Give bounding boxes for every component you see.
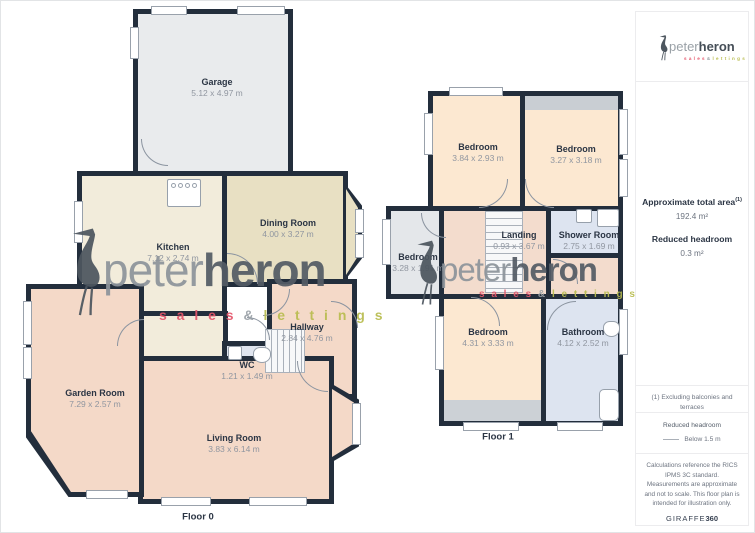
brand-tagline: s a l e s & l e t t i n g s bbox=[479, 289, 637, 300]
room-dims: 5.12 x 4.97 m bbox=[152, 88, 282, 99]
reduced-headroom-value: 0.3 m² bbox=[636, 249, 748, 258]
window bbox=[355, 209, 364, 233]
legend-line-swatch bbox=[663, 439, 679, 440]
tagline-lettings: l e t t i n g s bbox=[552, 289, 637, 300]
window bbox=[23, 347, 32, 379]
burner-icon bbox=[185, 183, 190, 188]
window bbox=[161, 497, 211, 506]
window bbox=[463, 422, 519, 431]
floor0-label: Floor 0 bbox=[138, 512, 258, 523]
room-name: Bathroom bbox=[518, 327, 648, 338]
tagline-sales: s a l e s bbox=[159, 307, 237, 323]
brand-name-bold: heron bbox=[699, 39, 735, 54]
window bbox=[23, 301, 32, 345]
heron-icon bbox=[413, 237, 441, 312]
brand-tagline: s a l e s & l e t t i n g s bbox=[159, 307, 386, 323]
giraffe360-logo: GIRAFFE360 bbox=[643, 514, 741, 523]
approx-area-text: Approximate total area bbox=[642, 197, 735, 207]
brand-name-light: peter bbox=[103, 244, 203, 296]
sink-icon bbox=[228, 346, 242, 360]
room-dims: 4.12 x 2.52 m bbox=[518, 338, 648, 349]
shower-icon bbox=[597, 209, 619, 227]
room-label-living: Living Room 3.83 x 6.14 m bbox=[169, 433, 299, 455]
sidebar-area-section: Approximate total area(1) 192.4 m² Reduc… bbox=[636, 82, 748, 386]
heron-icon bbox=[67, 223, 105, 324]
approx-area-value: 192.4 m² bbox=[636, 212, 748, 221]
brand-wordmark: peterheron bbox=[440, 253, 597, 286]
info-sidebar: peterheron s a l e s & l e t t i n g s A… bbox=[635, 11, 749, 526]
tagline-amp: & bbox=[243, 307, 256, 323]
tagline-amp: & bbox=[707, 56, 711, 61]
room-name: Bedroom bbox=[511, 144, 641, 155]
brand-name-light: peter bbox=[669, 39, 699, 54]
approx-area-footnote-marker: (1) bbox=[735, 197, 742, 203]
room-dims: 2.84 x 4.76 m bbox=[242, 333, 372, 344]
room-name: WC bbox=[182, 360, 312, 371]
room-label-wc: WC 1.21 x 1.49 m bbox=[182, 360, 312, 382]
brand-tagline: s a l e s & l e t t i n g s bbox=[684, 56, 745, 61]
room-label-garage: Garage 5.12 x 4.97 m bbox=[152, 77, 282, 99]
heron-icon bbox=[658, 34, 669, 66]
tagline-sales: s a l e s bbox=[479, 289, 533, 300]
room-name: Hallway bbox=[242, 322, 372, 333]
footnote-text: (1) Excluding balconies and terraces bbox=[642, 393, 742, 413]
room-dims: 4.00 x 3.27 m bbox=[223, 229, 353, 240]
window bbox=[237, 6, 285, 15]
brand-name-bold: heron bbox=[203, 244, 326, 296]
room-name: Garage bbox=[152, 77, 282, 88]
room-dims: 1.21 x 1.49 m bbox=[182, 371, 312, 382]
giraffe-360: 360 bbox=[706, 514, 719, 523]
room-label-hallway: Hallway 2.84 x 4.76 m bbox=[242, 322, 372, 344]
window bbox=[249, 497, 307, 506]
disclaimer-text: Calculations reference the RICS IPMS 3C … bbox=[643, 461, 741, 509]
floorplan-page: Garage 5.12 x 4.97 m Kitchen 7.12 x 2.74… bbox=[0, 0, 755, 533]
bathtub-icon bbox=[599, 389, 619, 421]
room-name: Garden Room bbox=[30, 388, 160, 399]
legend-item: Below 1.5 m bbox=[684, 435, 720, 445]
approx-area-label: Approximate total area(1) bbox=[636, 197, 748, 207]
brand-name-light: peter bbox=[440, 251, 510, 288]
window bbox=[449, 87, 503, 96]
burner-icon bbox=[192, 183, 197, 188]
tagline-amp: & bbox=[538, 289, 547, 300]
giraffe-text: GIRAFFE bbox=[666, 514, 706, 523]
burner-icon bbox=[178, 183, 183, 188]
room-dims: 3.83 x 6.14 m bbox=[169, 444, 299, 455]
sidebar-logo-section: peterheron s a l e s & l e t t i n g s bbox=[636, 12, 748, 82]
brand-wordmark: peterheron bbox=[669, 40, 735, 53]
sink-icon bbox=[576, 209, 592, 223]
legend-title: Reduced headroom bbox=[636, 421, 748, 431]
room-label-bathroom: Bathroom 4.12 x 2.52 m bbox=[518, 327, 648, 349]
room-dims: 3.27 x 3.18 m bbox=[511, 155, 641, 166]
window bbox=[151, 6, 187, 15]
stove-icon bbox=[167, 179, 201, 207]
room-label-bed-tr: Bedroom 3.27 x 3.18 m bbox=[511, 144, 641, 166]
tagline-sales: s a l e s bbox=[684, 56, 705, 61]
brand-wordmark: peterheron bbox=[103, 247, 326, 293]
sidebar-footnote-section: (1) Excluding balconies and terraces bbox=[636, 386, 748, 413]
reduced-headroom-area bbox=[525, 96, 618, 110]
brand-name-bold: heron bbox=[510, 251, 597, 288]
room-label-dining: Dining Room 4.00 x 3.27 m bbox=[223, 218, 353, 240]
window bbox=[130, 27, 139, 59]
room-label-garden: Garden Room 7.29 x 2.57 m bbox=[30, 388, 160, 410]
burner-icon bbox=[171, 183, 176, 188]
reduced-headroom-label: Reduced headroom bbox=[636, 234, 748, 244]
room-name: Living Room bbox=[169, 433, 299, 444]
window bbox=[86, 490, 128, 499]
floor1-label: Floor 1 bbox=[438, 432, 558, 443]
sidebar-disclaimer-section: Calculations reference the RICS IPMS 3C … bbox=[636, 454, 748, 524]
reduced-headroom-area bbox=[444, 400, 541, 421]
room-name: Dining Room bbox=[223, 218, 353, 229]
tagline-lettings: l e t t i n g s bbox=[264, 307, 386, 323]
sidebar-legend-section: Reduced headroom Below 1.5 m bbox=[636, 413, 748, 454]
room-dims: 7.29 x 2.57 m bbox=[30, 399, 160, 410]
tagline-lettings: l e t t i n g s bbox=[713, 56, 746, 61]
living-bay-floor bbox=[332, 389, 354, 457]
window bbox=[352, 403, 361, 445]
window bbox=[557, 422, 603, 431]
